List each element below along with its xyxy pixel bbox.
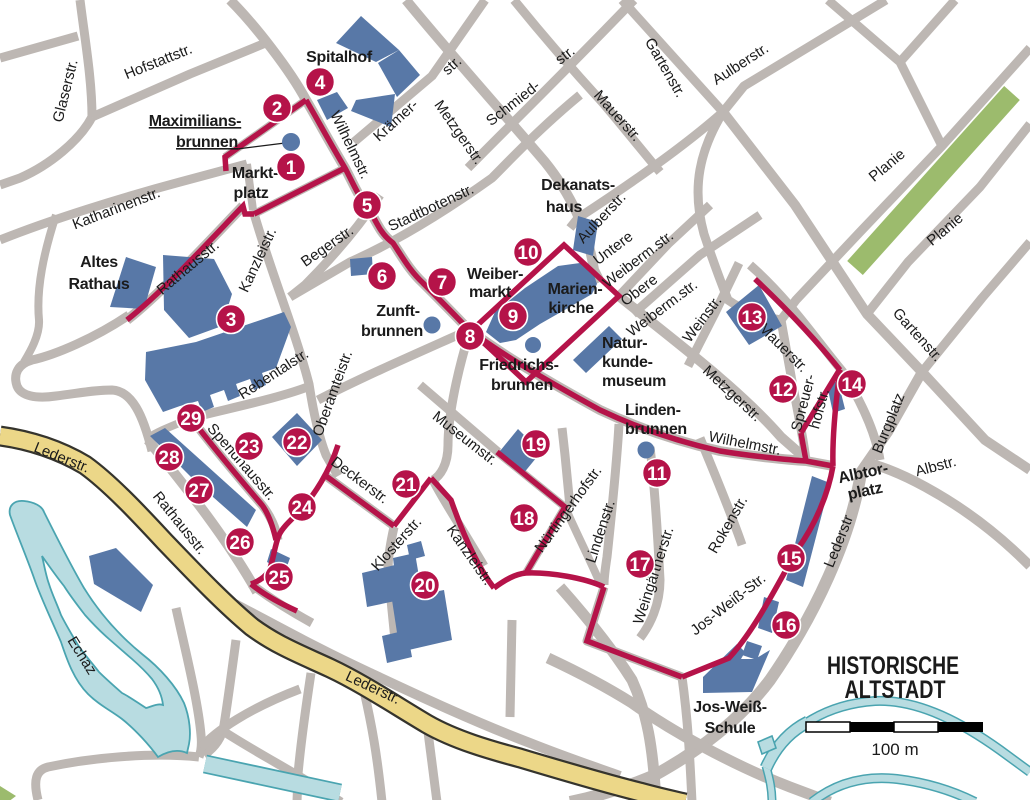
svg-text:22: 22 [286,433,307,454]
svg-text:19: 19 [525,435,546,456]
svg-text:9: 9 [508,307,519,328]
svg-text:27: 27 [188,481,209,502]
svg-text:Spitalhof: Spitalhof [306,49,373,66]
svg-text:markt: markt [469,284,512,301]
svg-text:Altes: Altes [80,254,118,271]
svg-text:11: 11 [647,464,668,485]
svg-text:100 m: 100 m [871,740,918,759]
svg-text:16: 16 [775,616,796,637]
svg-text:Jos-Weiß-: Jos-Weiß- [693,699,766,716]
svg-text:1: 1 [286,158,297,179]
svg-text:Markt-: Markt- [232,165,278,182]
svg-text:kunde-: kunde- [602,354,653,371]
svg-text:ALTSTADT: ALTSTADT [845,676,946,704]
svg-text:6: 6 [377,267,388,288]
svg-text:Marien-: Marien- [548,281,603,298]
svg-text:18: 18 [513,509,534,530]
svg-text:14: 14 [841,375,863,396]
svg-text:13: 13 [741,308,762,329]
svg-text:brunnen: brunnen [176,134,238,151]
svg-text:brunnen: brunnen [491,377,553,394]
svg-text:Zunft-: Zunft- [376,303,420,320]
svg-text:museum: museum [602,373,666,390]
svg-text:5: 5 [362,196,373,217]
svg-text:Dekanats-: Dekanats- [541,177,615,194]
svg-text:kirche: kirche [548,300,594,317]
svg-text:Maximilians-: Maximilians- [149,113,241,130]
svg-text:17: 17 [629,555,650,576]
svg-text:25: 25 [268,568,290,589]
svg-text:Schule: Schule [705,720,756,737]
svg-text:21: 21 [395,475,417,496]
svg-text:2: 2 [272,99,283,120]
svg-text:29: 29 [180,409,201,430]
svg-text:28: 28 [158,448,179,469]
svg-text:Natur-: Natur- [602,335,647,352]
svg-text:Friedrichs-: Friedrichs- [479,357,558,374]
svg-text:Weiber-: Weiber- [467,266,523,283]
svg-text:8: 8 [465,327,476,348]
svg-text:23: 23 [238,437,259,458]
svg-text:brunnen: brunnen [361,323,423,340]
svg-text:12: 12 [772,380,793,401]
svg-text:Rathaus: Rathaus [68,276,129,293]
svg-text:4: 4 [315,73,326,94]
svg-text:26: 26 [229,533,250,554]
svg-text:20: 20 [414,576,435,597]
svg-text:15: 15 [780,549,802,570]
svg-text:3: 3 [226,310,237,331]
svg-text:7: 7 [437,273,448,294]
svg-text:10: 10 [517,243,538,264]
svg-text:24: 24 [291,498,313,519]
svg-text:haus: haus [546,199,583,216]
svg-text:brunnen: brunnen [625,421,687,438]
svg-text:Linden-: Linden- [625,402,681,419]
svg-text:platz: platz [234,185,269,202]
